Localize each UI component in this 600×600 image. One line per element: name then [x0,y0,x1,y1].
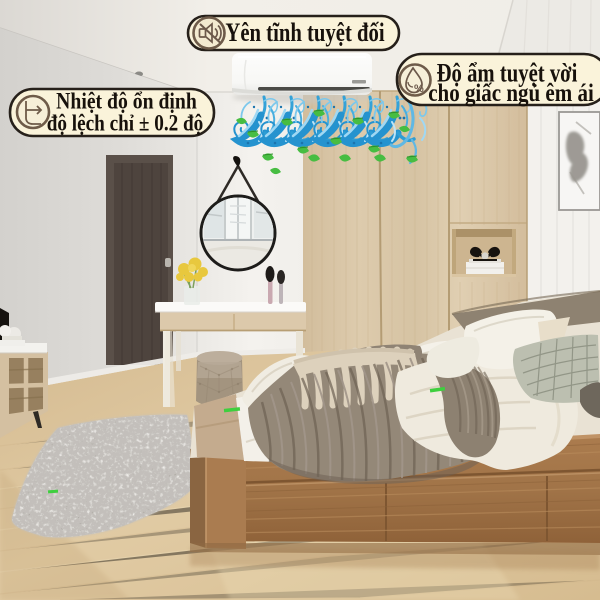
svg-text:độ lệch chỉ ± 0.2 độ: độ lệch chỉ ± 0.2 độ [47,110,204,136]
svg-text:Yên tĩnh tuyệt đối: Yên tĩnh tuyệt đối [225,19,385,48]
svg-text:cho giấc ngủ êm ái: cho giấc ngủ êm ái [428,79,594,107]
svg-text:%: % [414,83,424,95]
